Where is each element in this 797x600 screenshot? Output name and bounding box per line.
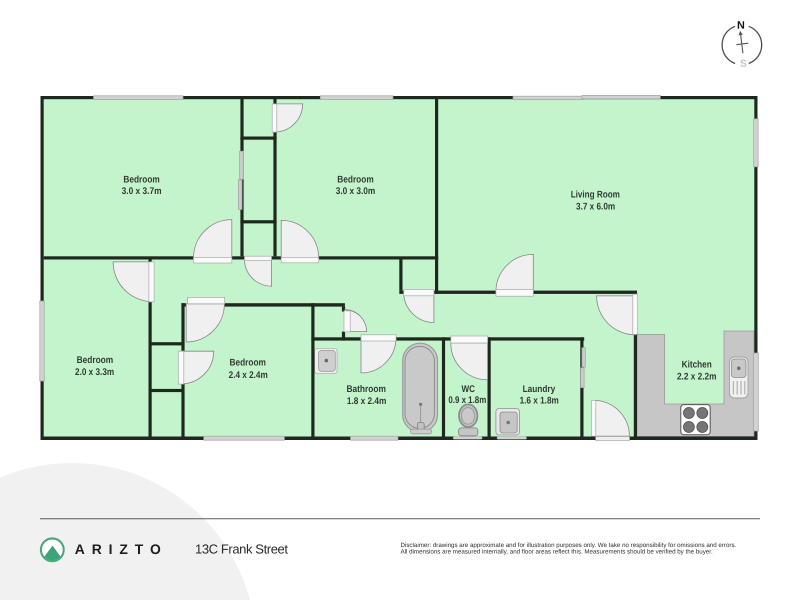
svg-text:Bedroom: Bedroom	[77, 355, 114, 366]
svg-text:ARIZTO: ARIZTO	[75, 541, 168, 557]
svg-text:Bedroom: Bedroom	[230, 358, 267, 369]
svg-text:13C Frank Street: 13C Frank Street	[195, 541, 288, 556]
svg-text:0.9 x 1.8m: 0.9 x 1.8m	[448, 395, 486, 406]
svg-text:3.0 x 3.7m: 3.0 x 3.7m	[122, 186, 162, 197]
svg-text:Bedroom: Bedroom	[337, 174, 374, 185]
svg-text:2.4 x 2.4m: 2.4 x 2.4m	[229, 370, 268, 381]
svg-text:2.0 x 3.3m: 2.0 x 3.3m	[75, 367, 114, 378]
svg-text:Bathroom: Bathroom	[346, 384, 386, 395]
svg-text:All dimensions are measured in: All dimensions are measured internally, …	[401, 549, 713, 556]
svg-text:1.6 x 1.8m: 1.6 x 1.8m	[520, 396, 560, 407]
svg-text:S: S	[740, 59, 747, 70]
svg-text:WC: WC	[461, 384, 475, 395]
svg-text:Kitchen: Kitchen	[682, 360, 712, 371]
svg-text:3.7 x 6.0m: 3.7 x 6.0m	[576, 202, 615, 213]
svg-text:Bedroom: Bedroom	[123, 174, 160, 185]
svg-text:2.2 x 2.2m: 2.2 x 2.2m	[677, 372, 717, 383]
svg-text:Laundry: Laundry	[523, 384, 556, 395]
svg-text:3.0 x 3.0m: 3.0 x 3.0m	[336, 186, 376, 197]
svg-text:N: N	[737, 20, 745, 32]
svg-text:Living Room: Living Room	[571, 190, 621, 201]
svg-text:1.8 x 2.4m: 1.8 x 2.4m	[347, 396, 387, 407]
